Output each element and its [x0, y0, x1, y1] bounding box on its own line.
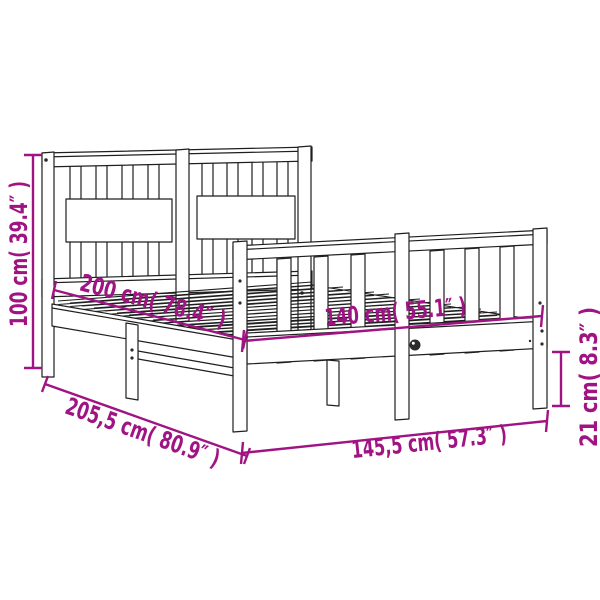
- dimension-height-label: 100 cm( 39.4″ ): [5, 181, 33, 327]
- screw-dot: [540, 342, 543, 345]
- screw-dot: [44, 158, 48, 162]
- footboard-post-right: [533, 228, 547, 409]
- knob: [410, 340, 421, 351]
- screw-dot: [540, 329, 543, 332]
- side-leg: [126, 323, 138, 400]
- bed-frame-dimension-diagram: 100 cm( 39.4″ ) 200 cm( 78.4″ ) 140 cm( …: [0, 0, 600, 600]
- footboard: [233, 228, 547, 432]
- dimension-width-outer-label: 145,5 cm( 57.3″ ): [350, 420, 508, 464]
- screw-dot: [238, 301, 241, 304]
- screw-dot: [130, 356, 133, 359]
- screw-dot: [538, 301, 541, 304]
- diagram-canvas: 100 cm( 39.4″ ) 200 cm( 78.4″ ) 140 cm( …: [0, 0, 600, 600]
- screw-dot: [529, 340, 531, 342]
- headboard-post-left: [42, 152, 54, 377]
- screw-dot: [238, 279, 241, 282]
- center-leg: [327, 360, 339, 406]
- headboard-panel: [197, 196, 295, 239]
- headboard-panel: [66, 199, 172, 242]
- dimension-rail-height-line: [552, 352, 570, 406]
- screw-dot: [130, 348, 133, 351]
- dimension-length-outer-label: 205,5 cm( 80.9″ ): [62, 392, 224, 473]
- dimension-rail-height-label: 21 cm( 8.3″ ): [575, 307, 600, 447]
- headboard-post-right: [298, 146, 311, 334]
- knob-highlight: [412, 342, 415, 345]
